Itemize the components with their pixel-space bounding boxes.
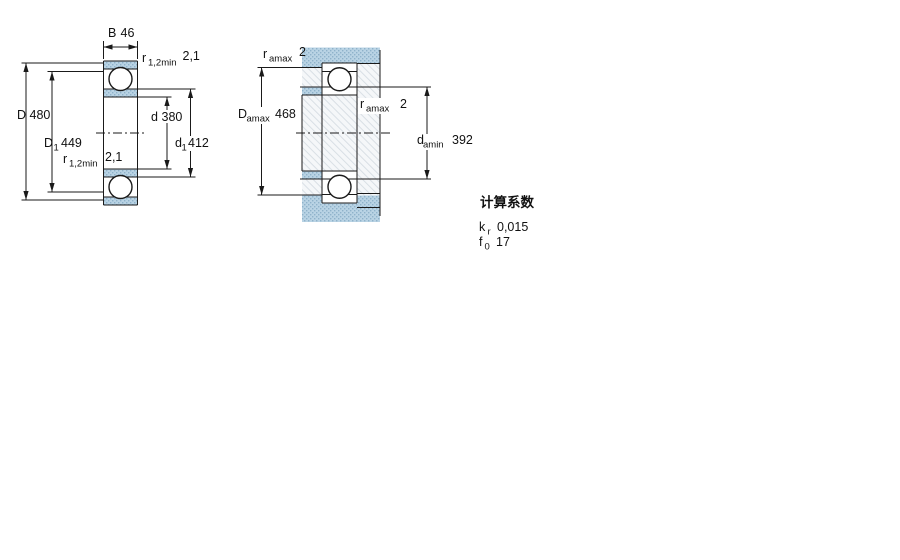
label-ra-right-value: 2: [400, 97, 407, 111]
label-d-value: 380: [162, 110, 183, 124]
ball-bottom: [109, 176, 132, 199]
label-damin-subscript: amin: [423, 140, 444, 151]
factor-kr-subscript: r: [488, 227, 491, 238]
label-r-bottom-symbol: r: [63, 152, 67, 166]
label-ra-top-symbol: r: [263, 47, 267, 61]
factor-f0-value: 17: [496, 235, 510, 249]
label-r-top-value: 2,1: [183, 49, 200, 63]
shaft-shoulder-bottom: [302, 171, 322, 179]
label-d1-value: 412: [188, 136, 209, 150]
label-d-symbol: d: [151, 110, 158, 124]
label-ra-right-subscript: amax: [366, 104, 389, 115]
label-D1-value: 449: [61, 136, 82, 150]
page-background: [0, 0, 900, 560]
label-D-value: 480: [30, 108, 51, 122]
label-r-bottom-subscript: 1,2min: [69, 159, 98, 170]
label-D1-symbol: D: [44, 136, 53, 150]
shaft-shoulder-top: [302, 87, 322, 95]
label-r-top-symbol: r: [142, 51, 146, 65]
label-r-top-subscript: 1,2min: [148, 58, 177, 69]
label-B-value: 46: [121, 26, 135, 40]
bearing-drawing-canvas: B 46 r 1,2min 2,1 D 480 D 1 449 r 1,2min…: [0, 0, 900, 560]
ball-top: [109, 68, 132, 91]
label-damin-value: 392: [452, 133, 473, 147]
ball-bottom: [328, 175, 351, 198]
label-Damax-value: 468: [275, 107, 296, 121]
label-ra-top-value: 2: [299, 45, 306, 59]
label-d1-subscript: 1: [182, 143, 187, 154]
factor-kr-value: 0,015: [497, 220, 528, 234]
label-D1-subscript: 1: [54, 143, 59, 154]
bearing-drawing-page: B 46 r 1,2min 2,1 D 480 D 1 449 r 1,2min…: [0, 0, 900, 560]
housing-top: [302, 48, 380, 64]
factor-f0-subscript: 0: [485, 242, 490, 253]
label-ra-right-symbol: r: [360, 97, 364, 111]
factor-kr-symbol: k: [479, 220, 486, 234]
label-Damax-subscript: amax: [247, 114, 270, 125]
factor-f0-symbol: f: [479, 235, 483, 249]
label-r-bottom-value: 2,1: [105, 150, 122, 164]
calculation-factors-title: 计算系数: [480, 194, 534, 210]
label-D-symbol: D: [17, 108, 26, 122]
label-B-symbol: B: [108, 26, 116, 40]
ball-top: [328, 68, 351, 91]
label-ra-top-subscript: amax: [269, 54, 292, 65]
